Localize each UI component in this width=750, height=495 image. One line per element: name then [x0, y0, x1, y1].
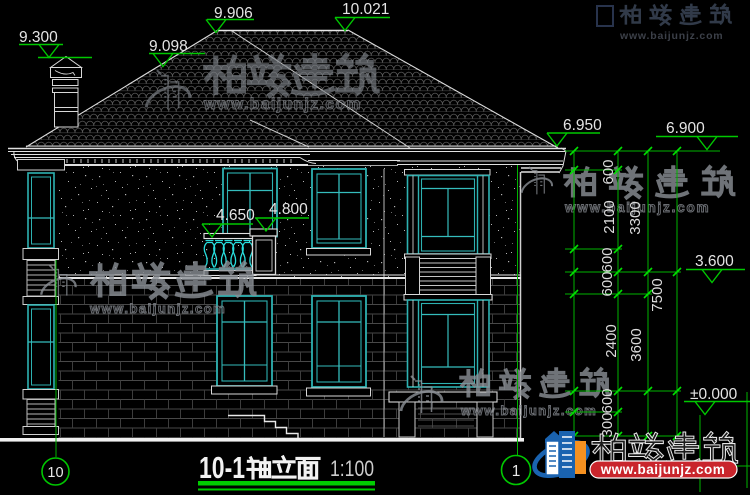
svg-text:600: 600 [599, 247, 616, 272]
svg-text:1: 1 [512, 463, 521, 480]
svg-text:600: 600 [599, 388, 616, 413]
svg-text:7500: 7500 [649, 278, 666, 311]
svg-text:www.baijunjz.com: www.baijunjz.com [203, 96, 362, 113]
svg-text:3600: 3600 [628, 328, 645, 361]
svg-text:10-1: 10-1 [199, 450, 245, 485]
svg-text:10: 10 [47, 465, 63, 481]
svg-text:9.098: 9.098 [149, 38, 188, 55]
svg-text:600: 600 [600, 159, 617, 184]
svg-text:3.600: 3.600 [695, 253, 734, 270]
svg-text:±0.000: ±0.000 [690, 386, 738, 403]
svg-text:600: 600 [599, 271, 616, 296]
svg-text:4.650: 4.650 [216, 207, 255, 224]
svg-text:10.021: 10.021 [342, 1, 389, 18]
svg-text:www.baijunjz.com: www.baijunjz.com [600, 462, 726, 477]
svg-text:6.950: 6.950 [563, 117, 602, 134]
svg-text:4.800: 4.800 [269, 201, 308, 218]
svg-text:www.baijunjz.com: www.baijunjz.com [89, 301, 226, 316]
svg-text:2400: 2400 [603, 324, 620, 357]
svg-text:www.baijunjz.com: www.baijunjz.com [619, 30, 723, 42]
svg-text:9.300: 9.300 [19, 29, 58, 46]
svg-text:6.900: 6.900 [666, 120, 705, 137]
svg-text:2100: 2100 [601, 200, 618, 233]
svg-text:3300: 3300 [627, 201, 644, 234]
svg-text:1:100: 1:100 [330, 456, 374, 481]
